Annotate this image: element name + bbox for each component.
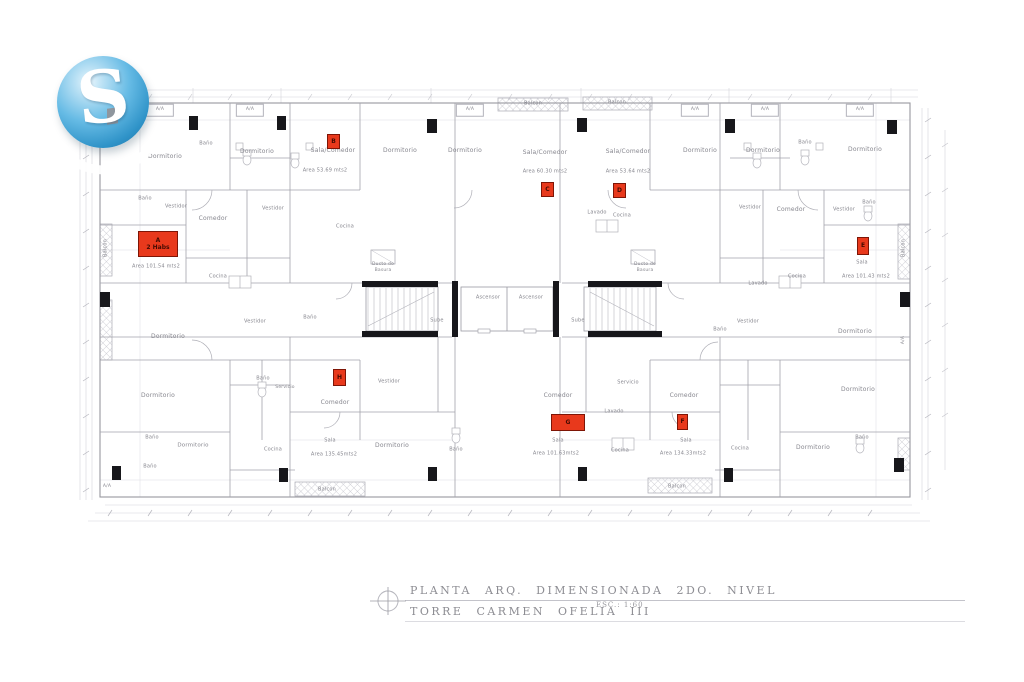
room-label: Balcon	[318, 488, 336, 493]
unit-area-label: Area 101.43 mts2	[842, 275, 890, 280]
room-label: Dormitorio	[848, 147, 882, 153]
room-label: Servicio	[275, 386, 294, 391]
unit-marker-e[interactable]: E	[857, 237, 869, 255]
room-label: Balcon	[668, 485, 686, 490]
room-label: Sala	[856, 261, 868, 266]
room-label: Vestidor	[244, 320, 266, 325]
room-label: Lavado	[587, 211, 606, 216]
unit-letter: B	[331, 138, 336, 146]
unit-sublabel: 2 Habs	[146, 244, 169, 252]
room-label: Baño	[199, 142, 213, 147]
room-label: Baño	[862, 201, 876, 206]
unit-letter: D	[617, 187, 622, 195]
room-label: Sala/Comedor	[523, 150, 568, 156]
room-label: Cocina	[264, 448, 282, 453]
room-label: Dormitorio	[148, 154, 182, 160]
plan-scale-label: ESC.: 1:60	[596, 601, 644, 609]
room-label: Dormitorio	[177, 443, 208, 449]
unit-area-label: Area 101.63mts2	[533, 452, 579, 457]
balcony-hatches	[100, 97, 910, 496]
guide-lines	[100, 103, 910, 497]
room-label: Dormitorio	[240, 149, 274, 155]
room-label: Balcon	[524, 102, 542, 107]
room-label: Vestidor	[262, 207, 284, 212]
room-label: Baño	[449, 448, 463, 453]
plan-title-line1: PLANTA ARQ. DIMENSIONADA 2DO. NIVEL	[410, 584, 777, 597]
unit-marker-b[interactable]: B	[327, 134, 340, 149]
north-compass-icon	[368, 584, 408, 618]
room-label: Comedor	[670, 393, 699, 399]
room-label: Baño	[855, 436, 869, 441]
unit-marker-f[interactable]: F	[677, 414, 688, 430]
unit-letter: F	[680, 418, 684, 426]
room-label: Dormitorio	[841, 387, 875, 393]
structural-columns	[100, 116, 910, 482]
unit-letter: E	[861, 242, 865, 250]
room-label: Baño	[713, 328, 727, 333]
room-label: Cocina	[613, 214, 631, 219]
company-logo: S	[57, 56, 149, 148]
room-label: Lavado	[748, 282, 767, 287]
room-label: Cocina	[731, 447, 749, 452]
dimension-lines	[80, 88, 945, 521]
room-label: Comedor	[544, 393, 573, 399]
floor-plan-page: DormitorioBañoDormitorioSala/ComedorDorm…	[0, 0, 1024, 682]
room-label: A/A	[902, 336, 907, 344]
unit-area-label: Area 53.69 mts2	[303, 169, 348, 174]
room-label: Dormitorio	[141, 393, 175, 399]
unit-letter: H	[337, 374, 342, 382]
room-label: Vestidor	[737, 320, 759, 325]
unit-marker-c[interactable]: C	[541, 182, 554, 197]
stair-core	[362, 250, 662, 337]
room-label: Sala	[552, 439, 564, 444]
room-label: Cocina	[611, 449, 629, 454]
unit-letter: G	[566, 419, 571, 427]
room-label: Sube	[571, 319, 584, 324]
room-label: Dormitorio	[375, 443, 409, 449]
room-label: Dormitorio	[796, 445, 830, 451]
room-label: Comedor	[199, 216, 228, 222]
unit-marker-a[interactable]: A2 Habs	[138, 231, 178, 257]
door-swings	[192, 190, 818, 428]
room-label: Dormitorio	[746, 148, 780, 154]
room-label: Sube	[430, 319, 443, 324]
dimension-ticks	[83, 94, 948, 516]
unit-letter: C	[545, 186, 549, 194]
room-label: Basura	[637, 269, 654, 274]
room-label: Cocina	[336, 225, 354, 230]
unit-marker-g[interactable]: G	[551, 414, 585, 431]
room-label: A/A	[456, 104, 484, 117]
room-label: Balcon	[104, 239, 109, 257]
room-label: Cocina	[788, 275, 806, 280]
room-label: Sala/Comedor	[606, 149, 651, 155]
stair-treads	[368, 288, 656, 330]
room-label: Lavado	[604, 410, 623, 415]
room-label: Baño	[143, 465, 157, 470]
room-label: Baño	[145, 436, 159, 441]
room-label: Dormitorio	[383, 148, 417, 154]
room-label: A/A	[103, 485, 111, 490]
unit-letter: A	[156, 237, 161, 245]
unit-area-label: Area 53.64 mts2	[606, 170, 651, 175]
room-label: Vestidor	[739, 206, 761, 211]
room-label: Vestidor	[833, 208, 855, 213]
room-label: A/A	[751, 104, 779, 117]
room-label: A/A	[846, 104, 874, 117]
unit-area-label: Area 134.33mts2	[660, 452, 706, 457]
room-label: Vestidor	[378, 380, 400, 385]
room-label: Balcon	[902, 239, 907, 257]
room-label: Baño	[256, 377, 270, 382]
room-label: Servicio	[617, 381, 638, 386]
room-label: Vestidor	[165, 205, 187, 210]
room-label: A/A	[681, 104, 709, 117]
room-label: Baño	[798, 141, 812, 146]
room-label: Dormitorio	[683, 148, 717, 154]
room-label: Ascensor	[519, 296, 543, 301]
room-label: Balcon	[608, 101, 626, 106]
room-label: Ducto de	[634, 263, 656, 268]
room-label: Dormitorio	[448, 148, 482, 154]
room-label: Comedor	[321, 400, 350, 406]
room-label: Ascensor	[476, 296, 500, 301]
logo-letter: S	[52, 45, 153, 146]
room-label: Sala	[324, 439, 336, 444]
unit-marker-d[interactable]: D	[613, 183, 626, 198]
room-label: Sala	[680, 439, 692, 444]
room-label: Basura	[375, 269, 392, 274]
room-label: Cocina	[209, 275, 227, 280]
unit-marker-h[interactable]: H	[333, 369, 346, 386]
room-label: Dormitorio	[838, 329, 872, 335]
unit-area-label: Area 60.30 mts2	[523, 170, 568, 175]
interior-walls	[100, 103, 910, 497]
room-label: Baño	[138, 197, 152, 202]
room-label: A/A	[236, 104, 264, 117]
room-label: Baño	[303, 316, 317, 321]
outer-walls	[100, 103, 910, 497]
room-label: Comedor	[777, 207, 806, 213]
unit-area-label: Area 135.45mts2	[311, 453, 357, 458]
title-rule-1	[405, 600, 965, 601]
room-label: Dormitorio	[151, 334, 185, 340]
unit-area-label: Area 101.54 mts2	[132, 265, 180, 270]
room-label: Ducto de	[372, 263, 394, 268]
title-rule-2	[405, 621, 965, 622]
